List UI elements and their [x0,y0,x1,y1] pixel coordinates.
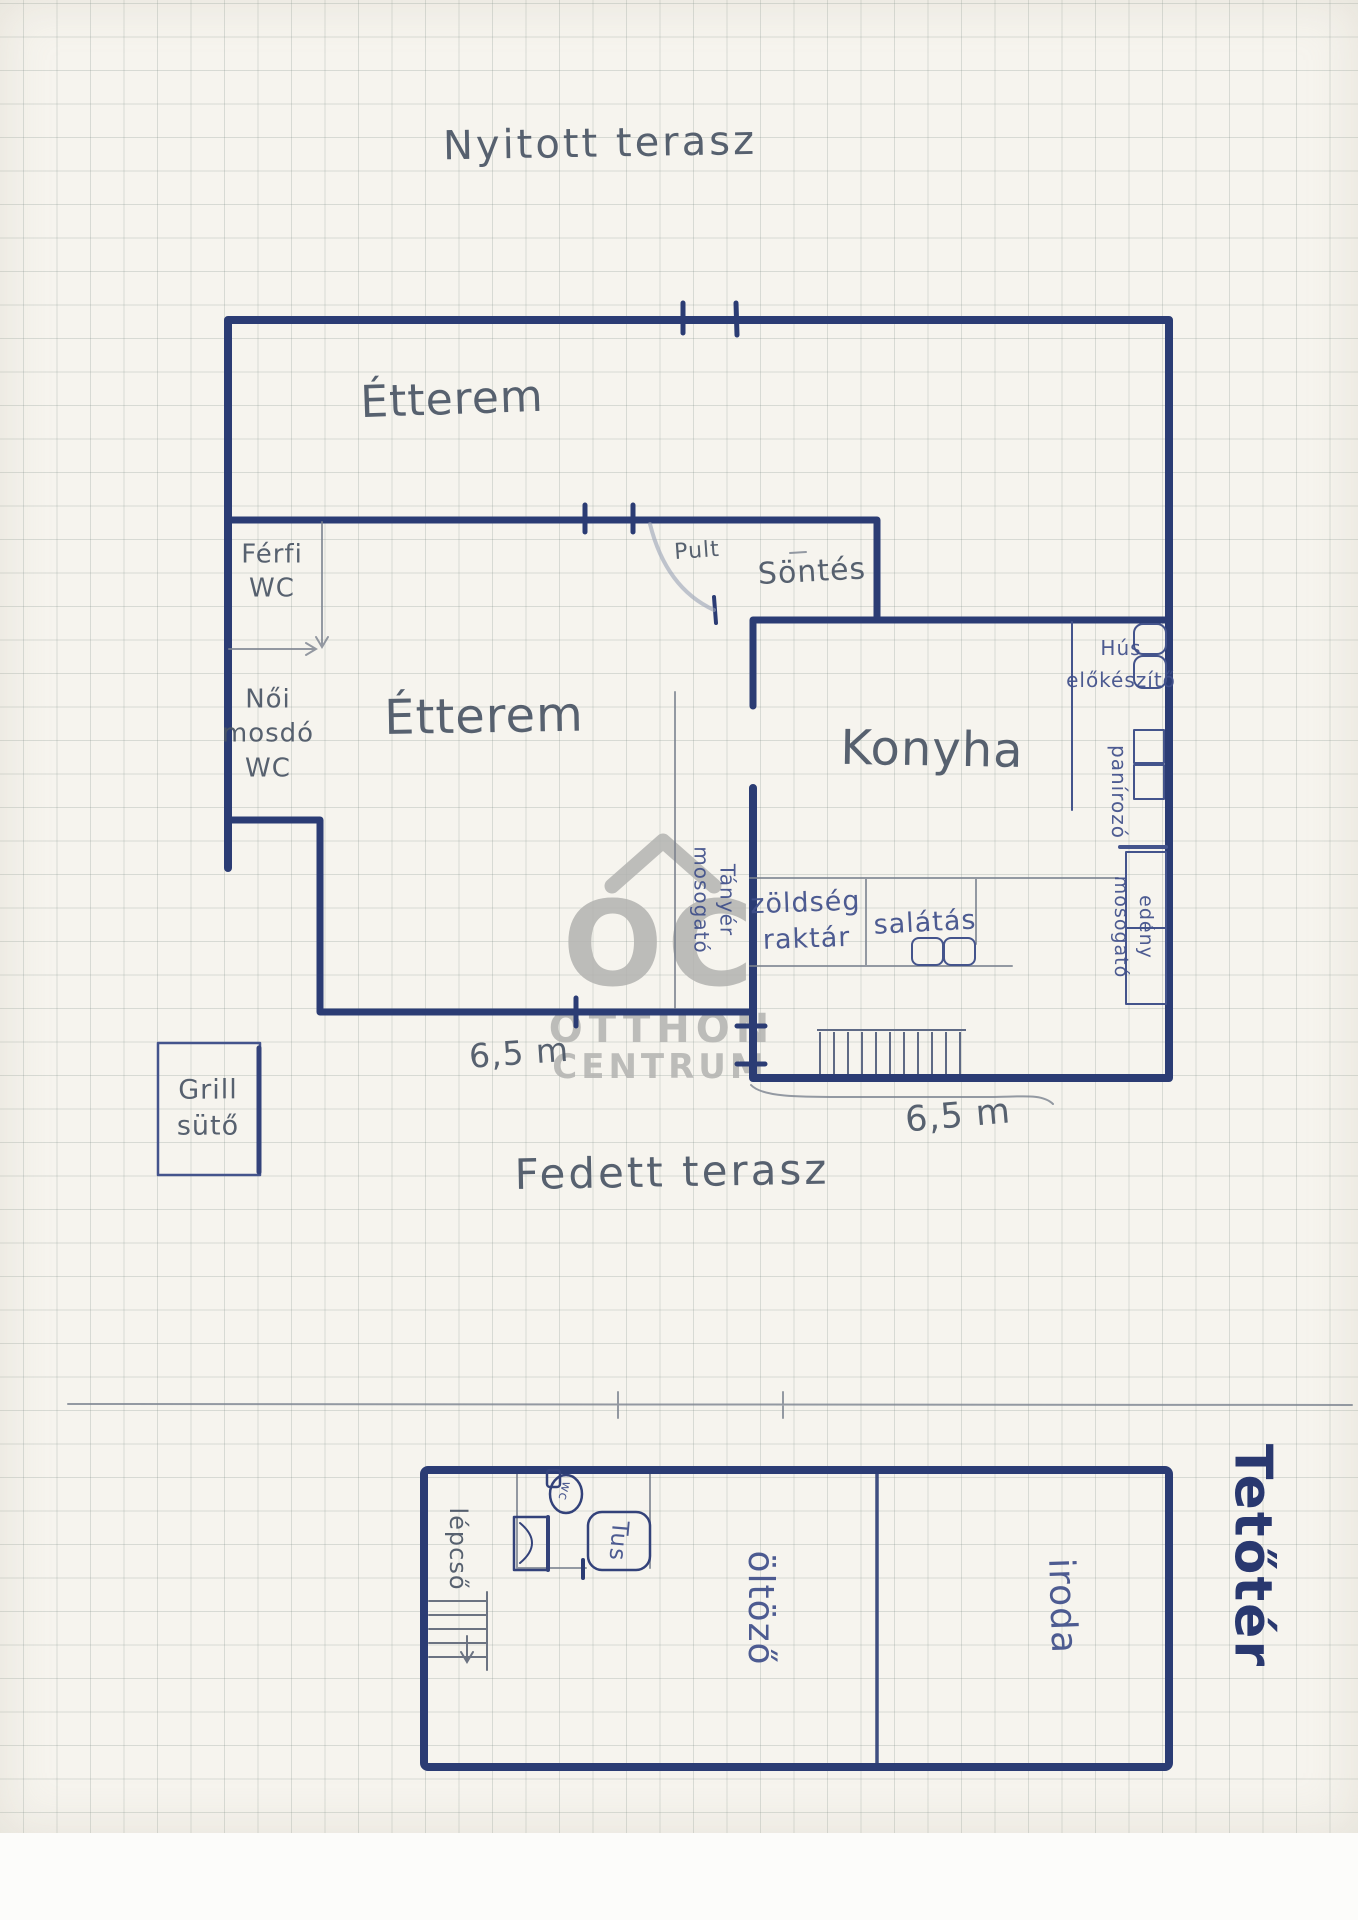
label-grill-oven: Grill sütő [177,1072,239,1143]
label-open-terrace: Nyitott terasz [443,115,758,173]
label-attic: Tetőtér [1218,1444,1287,1668]
label-dining-upper: Étterem [359,368,544,432]
label-dim-kitchen: 6,5 m [903,1088,1013,1143]
floorplan-page: OC OTTHON CENTRUM [0,0,1358,1920]
label-covered-terrace: Fedett terasz [514,1142,830,1203]
sink-basin-curve [520,1523,532,1563]
page-separator-line [68,1392,1352,1418]
label-womens-wc: Női mosdó WC [222,683,314,786]
label-veg-storage: zöldség raktár [750,883,863,958]
salad-sink-2 [944,938,975,965]
label-stairs: lépcső [441,1507,473,1590]
entry-steps [817,1030,966,1074]
wc-dimension-line [229,643,316,655]
label-counter: Pult [673,535,720,567]
label-breading: panírozó [1106,745,1132,839]
label-office: iroda [1037,1557,1088,1655]
label-mens-wc: Férfi WC [241,538,303,607]
label-dressing-room: öltöző [736,1550,784,1665]
label-meat-prep: Hús előkészítő [1066,632,1176,696]
label-dim-dining: 6,5 m [468,1028,571,1078]
label-salad-prep: salátás [873,903,978,944]
label-dining-main: Étterem [384,684,585,751]
label-pot-wash: edény mosogató [1108,876,1158,978]
dining-lower-wall [229,820,752,1012]
outer-wall [228,320,1169,1078]
label-taproom: Söntés [757,549,867,594]
wc-divider-line [316,522,328,647]
label-kitchen: Konyha [840,717,1024,784]
attic-stairs [429,1592,487,1670]
label-shower: Tus [601,1520,635,1563]
breading-counter-1 [1134,730,1164,763]
label-plate-wash: Tányér mosogató [688,846,741,953]
salad-sink-1 [912,938,943,965]
breading-counter-2 [1134,765,1164,799]
